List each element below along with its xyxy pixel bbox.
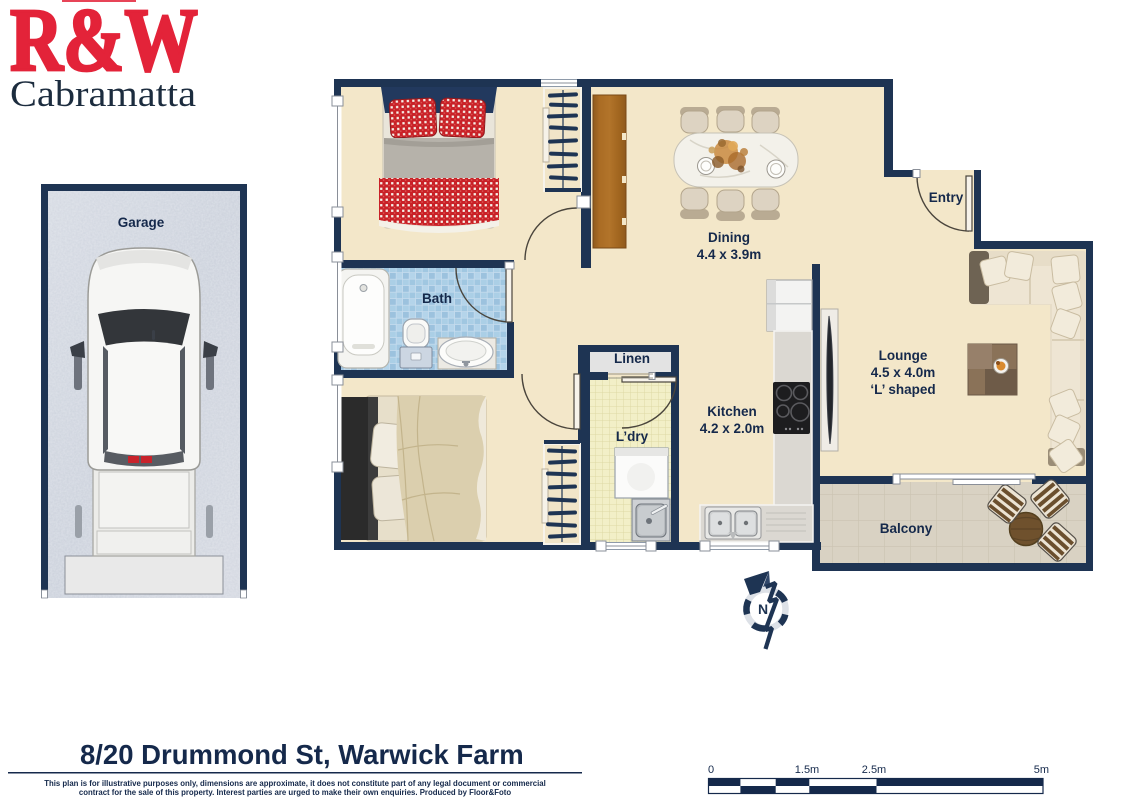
svg-text:L’dry: L’dry [616,429,649,444]
svg-text:0: 0 [708,764,714,776]
svg-text:Dining: Dining [708,230,750,245]
svg-text:2.5m: 2.5m [862,764,886,776]
svg-text:Cabramatta: Cabramatta [10,74,196,115]
svg-text:4.5 x 4.0m: 4.5 x 4.0m [871,365,936,380]
svg-text:Kitchen: Kitchen [707,404,757,419]
svg-text:contract for the sale of this: contract for the sale of this property. … [79,788,511,797]
svg-text:8/20 Drummond St, Warwick Farm: 8/20 Drummond St, Warwick Farm [80,739,524,770]
svg-text:This plan is for illustrative: This plan is for illustrative purposes o… [44,779,546,788]
svg-text:Entry: Entry [929,190,964,205]
svg-text:Bath: Bath [422,291,452,306]
svg-text:4.4 x 3.9m: 4.4 x 3.9m [697,247,762,262]
svg-text:Balcony: Balcony [880,521,933,536]
svg-text:4.2 x 2.0m: 4.2 x 2.0m [700,421,765,436]
svg-text:‘L’ shaped: ‘L’ shaped [870,382,935,397]
svg-text:Lounge: Lounge [879,348,928,363]
svg-text:Linen: Linen [614,351,650,366]
svg-text:1.5m: 1.5m [795,764,819,776]
svg-text:5m: 5m [1034,764,1049,776]
svg-text:N: N [758,601,768,617]
svg-text:Garage: Garage [118,215,165,230]
